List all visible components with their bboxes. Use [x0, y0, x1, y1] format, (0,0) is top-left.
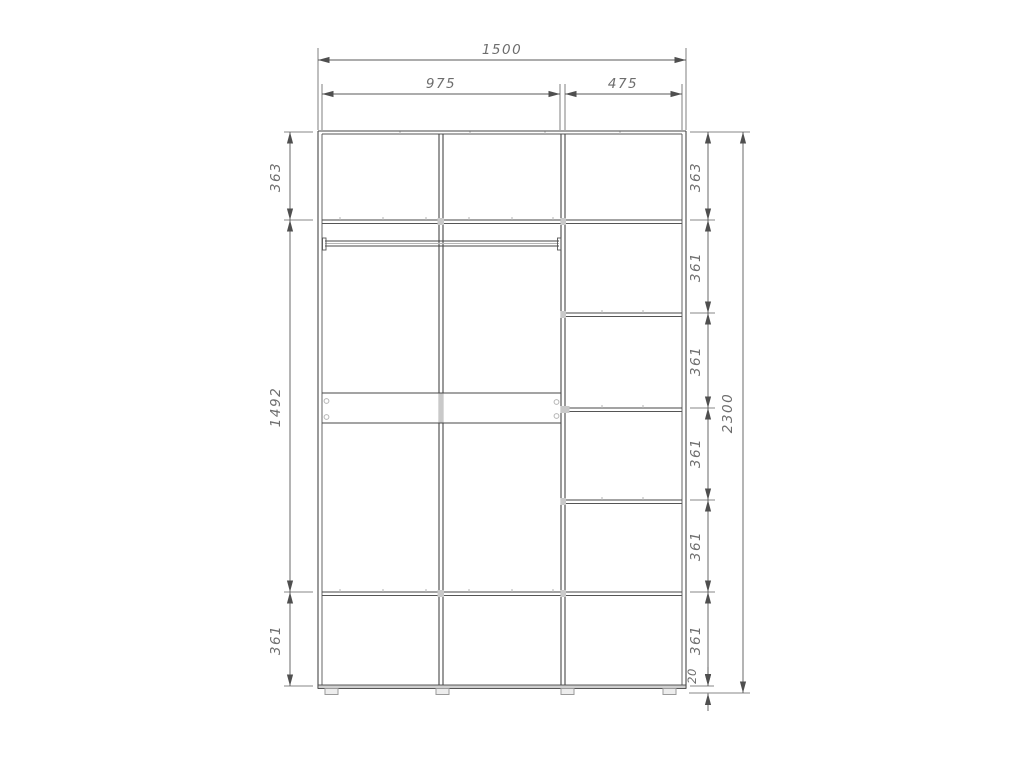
dim-right-row-6: 361 [688, 625, 704, 655]
wardrobe-dimension-drawing: 1500 975 475 363 1492 361 363 361 361 36… [0, 0, 1024, 768]
dim-left-section-width: 975 [426, 76, 456, 92]
dim-plinth-height: 20 [685, 668, 699, 684]
dim-right-row-3: 361 [688, 346, 704, 376]
cam-lock-mark [554, 414, 559, 419]
dim-left-bottom: 361 [268, 625, 284, 655]
dim-right-section-width: 475 [608, 76, 638, 92]
cabinet-feet [325, 689, 676, 695]
dim-right-row-2: 361 [688, 252, 704, 282]
dim-total-width: 1500 [482, 42, 522, 58]
panel-joint-marks [340, 132, 643, 598]
extension-lines [284, 48, 750, 693]
cam-lock-mark [554, 400, 559, 405]
dim-total-height: 2300 [720, 393, 736, 433]
dim-left-middle: 1492 [268, 387, 284, 427]
cabinet-structure [318, 131, 686, 695]
cam-lock-mark [324, 415, 329, 420]
partition-joint-fill [439, 394, 444, 423]
vertical-partitions [439, 134, 566, 685]
drawing-canvas: 1500 975 475 363 1492 361 363 361 361 36… [0, 0, 1024, 768]
dim-right-row-5: 361 [688, 531, 704, 561]
dimension-lines [290, 60, 743, 711]
cam-lock-mark [324, 399, 329, 404]
dim-right-row-4: 361 [688, 438, 704, 468]
carcass-outline [318, 131, 686, 689]
dim-left-top: 363 [268, 162, 284, 192]
right-column-shelves [565, 313, 682, 504]
hanging-rod [323, 238, 562, 250]
dim-right-row-1: 363 [688, 162, 704, 192]
bottom-plinth-board [318, 685, 686, 689]
dimension-labels: 1500 975 475 363 1492 361 363 361 361 36… [268, 42, 736, 684]
